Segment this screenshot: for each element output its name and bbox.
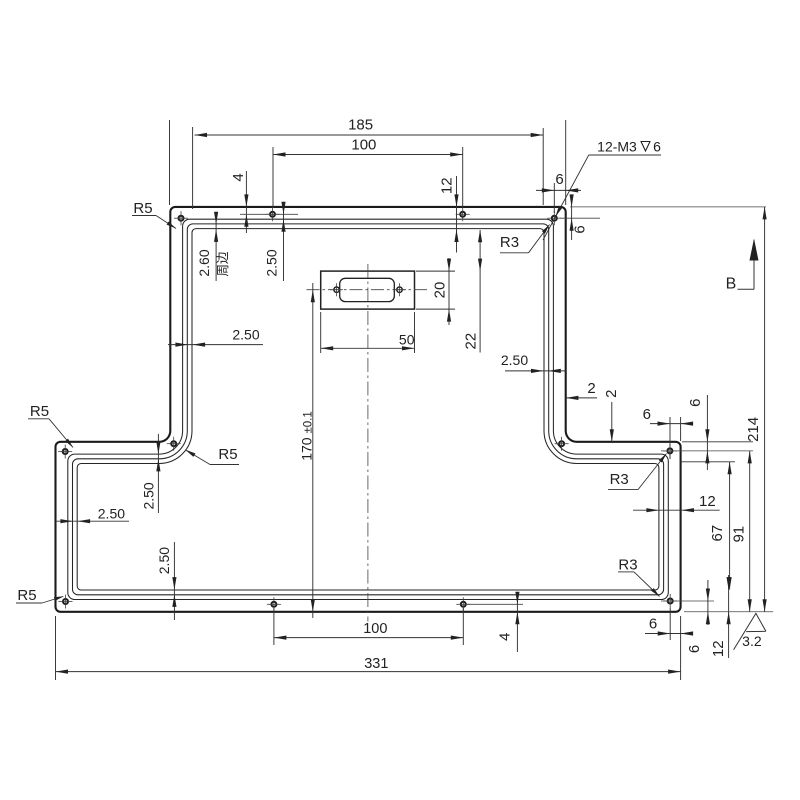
svg-text:6: 6 (686, 645, 703, 653)
svg-text:91: 91 (730, 526, 747, 543)
svg-text:6: 6 (653, 139, 661, 155)
svg-text:R5: R5 (218, 446, 237, 463)
svg-text:4: 4 (230, 173, 247, 181)
svg-text:2.50: 2.50 (98, 506, 125, 522)
svg-text:67: 67 (709, 525, 726, 542)
svg-text:2.50: 2.50 (501, 352, 528, 368)
svg-text:B: B (726, 276, 737, 293)
svg-text:12: 12 (699, 493, 716, 510)
svg-text:6: 6 (687, 399, 704, 407)
svg-text:3.2: 3.2 (742, 633, 762, 649)
svg-text:6: 6 (643, 406, 651, 423)
svg-text:100: 100 (363, 621, 387, 637)
svg-text:R5: R5 (133, 200, 152, 217)
svg-text:R3: R3 (618, 557, 637, 574)
svg-text:R3: R3 (610, 471, 629, 488)
svg-text:6: 6 (649, 616, 657, 633)
svg-text:100: 100 (351, 136, 376, 153)
svg-text:185: 185 (348, 116, 373, 133)
svg-text:2: 2 (603, 390, 620, 398)
svg-text:50: 50 (399, 331, 415, 347)
svg-text:22: 22 (463, 333, 480, 350)
svg-text:214: 214 (745, 417, 762, 442)
svg-text:R3: R3 (500, 234, 519, 251)
svg-text:20: 20 (432, 282, 449, 299)
svg-text:331: 331 (364, 656, 388, 672)
svg-text:2.50: 2.50 (140, 482, 156, 509)
svg-text:2.50: 2.50 (263, 249, 279, 276)
svg-text:R5: R5 (17, 587, 36, 604)
svg-text:12: 12 (710, 640, 727, 657)
svg-text:周边: 周边 (216, 251, 230, 277)
svg-text:4: 4 (497, 633, 514, 641)
svg-text:6: 6 (572, 225, 589, 233)
svg-text:6: 6 (555, 171, 563, 188)
svg-text:12-M3: 12-M3 (597, 139, 637, 155)
svg-text:2.50: 2.50 (232, 327, 259, 343)
svg-text:2.50: 2.50 (156, 547, 172, 574)
svg-text:R5: R5 (30, 403, 49, 420)
svg-text:2.60: 2.60 (196, 249, 212, 276)
svg-text:12: 12 (439, 177, 456, 194)
svg-text:2: 2 (587, 380, 595, 397)
